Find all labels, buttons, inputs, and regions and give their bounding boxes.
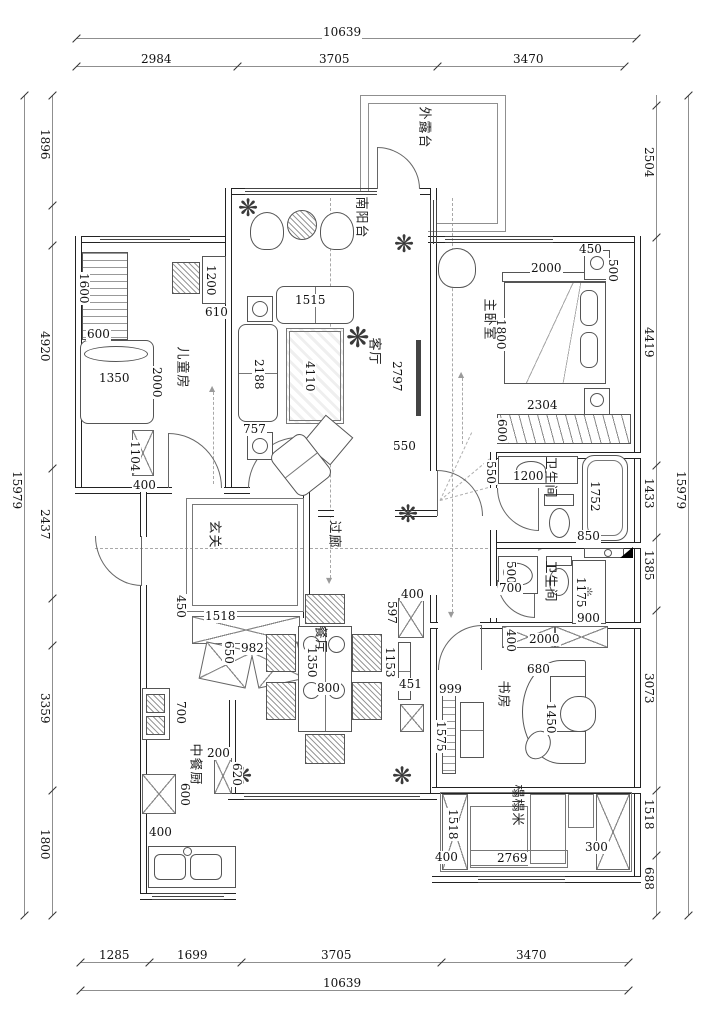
window xyxy=(478,876,565,883)
dim-label: 982 xyxy=(240,642,265,655)
axis-line xyxy=(462,378,463,444)
door-entry xyxy=(95,536,142,586)
balcony-table xyxy=(287,210,317,240)
dim-label: 700 xyxy=(498,582,523,595)
dim-label: 15979 xyxy=(674,470,687,510)
dim-label: 1600 xyxy=(77,272,90,305)
dim-label: 400 xyxy=(132,479,157,492)
pillow xyxy=(580,332,598,368)
dim-label: 680 xyxy=(526,663,551,676)
dining-chair xyxy=(305,594,345,624)
kitchen-sink xyxy=(154,854,186,880)
dim-label: 999 xyxy=(438,683,463,696)
bookshelf xyxy=(555,626,608,648)
dim-label: 550 xyxy=(484,460,497,485)
arrow-up-icon: ▲ xyxy=(458,371,464,379)
lamp xyxy=(252,438,268,454)
door-terrace xyxy=(377,147,420,189)
dim-label: 1153 xyxy=(383,646,396,679)
terrace-outline xyxy=(505,95,506,232)
toilet xyxy=(549,508,570,538)
room-label-dining: 餐厅 xyxy=(314,625,327,653)
window xyxy=(430,200,437,244)
dim-label: 1752 xyxy=(588,480,601,513)
balcony-chair xyxy=(320,212,354,250)
dim-label: 2000 xyxy=(530,262,563,275)
wall xyxy=(140,585,147,900)
dim-line xyxy=(656,95,657,915)
door-bathroom-1 xyxy=(497,488,539,531)
dining-chair xyxy=(266,682,296,720)
dining-chair xyxy=(305,734,345,764)
wall xyxy=(490,530,497,586)
arrow-down-icon: ▼ xyxy=(326,577,332,585)
dim-label: 1200 xyxy=(512,470,545,483)
dim-label: 2304 xyxy=(526,399,559,412)
wall xyxy=(634,236,641,883)
dim-label: 1385 xyxy=(642,549,655,582)
pillow xyxy=(84,346,148,362)
dim-label: 600 xyxy=(495,418,508,443)
washer xyxy=(604,549,612,557)
lamp xyxy=(590,256,604,270)
cabinet xyxy=(142,774,176,814)
wall xyxy=(420,793,437,800)
dim-label: 620 xyxy=(230,762,243,787)
dim-label: 1350 xyxy=(98,372,131,385)
burner xyxy=(146,716,165,735)
dim-label: 200 xyxy=(206,747,231,760)
pillow xyxy=(580,290,598,326)
dim-label: 2000 xyxy=(150,366,163,399)
dim-label: 4920 xyxy=(38,330,51,363)
room-label-kitchen: 中餐厨 xyxy=(189,743,202,785)
room-label-bathroom-1: 卫生间 xyxy=(544,456,557,498)
tatami-panel xyxy=(596,794,630,870)
dim-label: 688 xyxy=(642,866,655,891)
arrow-up-icon: ▲ xyxy=(209,385,215,393)
window xyxy=(245,188,377,195)
door-master-bedroom xyxy=(437,470,483,516)
terrace-outline xyxy=(497,103,498,223)
dim-label: 1518 xyxy=(642,798,655,831)
dim-label: 3470 xyxy=(515,949,548,962)
dim-label: 650 xyxy=(222,640,235,665)
room-label-south-balcony: 南阳台 xyxy=(355,196,368,238)
plant-icon: ❋ xyxy=(394,232,414,256)
dim-label: 1175 xyxy=(574,576,587,609)
wall xyxy=(75,487,172,494)
room-label-terrace: 外露台 xyxy=(418,106,431,148)
desk-chair xyxy=(172,262,200,294)
dim-label: 3705 xyxy=(318,53,351,66)
cabinet xyxy=(398,598,424,638)
dim-label: 3073 xyxy=(642,672,655,705)
tv xyxy=(416,340,421,416)
wardrobe xyxy=(497,414,631,444)
wall xyxy=(430,188,437,200)
arrow-down-icon: ▼ xyxy=(448,611,454,619)
dim-label: 2000 xyxy=(528,633,561,646)
dim-label: 800 xyxy=(316,682,341,695)
dining-chair xyxy=(266,634,296,672)
foyer-floor-inner xyxy=(192,504,298,606)
dim-label: 1515 xyxy=(294,294,327,307)
wall xyxy=(228,793,244,800)
room-label-master-bedroom: 主卧室 xyxy=(483,298,496,340)
plant-icon: ❋ xyxy=(238,196,258,220)
dim-label: 15979 xyxy=(10,470,23,510)
wall xyxy=(318,510,334,517)
room-label-bathroom-2: 卫生间 xyxy=(544,560,557,602)
dim-label: 450 xyxy=(174,594,187,619)
burner xyxy=(146,694,165,713)
cabinet xyxy=(460,702,484,758)
dim-line xyxy=(52,95,53,915)
dim-label: 400 xyxy=(434,851,459,864)
tatami-section xyxy=(568,794,594,828)
floor-plan: ▶ ▼ ▼ ▲ ▲ xyxy=(0,0,701,1018)
dim-line xyxy=(688,95,689,915)
dim-label: 500 xyxy=(606,258,619,283)
dining-chair xyxy=(352,634,382,672)
terrace-outline xyxy=(428,231,506,232)
dim-label: 3705 xyxy=(320,949,353,962)
dim-line xyxy=(24,95,25,915)
wall xyxy=(140,487,147,537)
corridor-axis-line xyxy=(95,548,538,549)
terrace-outline xyxy=(436,223,498,224)
dim-label: 2769 xyxy=(496,852,529,865)
room-label-study: 书房 xyxy=(497,680,510,708)
window xyxy=(100,236,190,243)
dim-label: 1800 xyxy=(38,828,51,861)
dim-label: 700 xyxy=(174,700,187,725)
dim-label: 900 xyxy=(576,612,601,625)
dim-label: 3470 xyxy=(512,53,545,66)
room-label-living-room: 客厅 xyxy=(368,337,381,365)
kitchen-sink xyxy=(190,854,222,880)
dim-label: 400 xyxy=(148,826,173,839)
wall xyxy=(224,487,250,494)
dim-label: 300 xyxy=(584,841,609,854)
dim-label: 2797 xyxy=(390,360,403,393)
terrace-outline xyxy=(368,103,369,191)
cabinet xyxy=(398,642,411,700)
room-label-corridor: 过廊 xyxy=(328,520,341,548)
plate xyxy=(328,636,345,653)
dim-label: 2437 xyxy=(38,508,51,541)
door-study xyxy=(438,625,482,670)
dim-label: 451 xyxy=(398,678,423,691)
armchair xyxy=(438,248,476,288)
dim-label: 757 xyxy=(242,423,267,436)
dim-label: 450 xyxy=(578,243,603,256)
dim-label: 2504 xyxy=(642,146,655,179)
dim-label: 1518 xyxy=(446,808,459,841)
cabinet xyxy=(400,704,424,732)
wall xyxy=(430,622,438,629)
room-label-foyer: 玄关 xyxy=(208,520,221,548)
dim-label: 400 xyxy=(400,588,425,601)
dim-label: 850 xyxy=(576,530,601,543)
dim-label: 1450 xyxy=(544,702,557,735)
dim-label: 3359 xyxy=(38,692,51,725)
dim-label: 600 xyxy=(178,782,191,807)
dim-label: 1518 xyxy=(204,610,237,623)
window xyxy=(152,893,224,900)
lamp xyxy=(252,301,268,317)
wall xyxy=(224,893,236,900)
dim-label: 1104 xyxy=(128,440,141,473)
window xyxy=(244,793,420,800)
wall xyxy=(140,893,152,900)
dim-label: 2984 xyxy=(140,53,173,66)
wall xyxy=(225,188,232,494)
dim-label: 1285 xyxy=(98,949,131,962)
desk-chair xyxy=(560,696,596,732)
wall xyxy=(432,876,478,883)
dim-label: 550 xyxy=(392,440,417,453)
dim-label: 597 xyxy=(385,600,398,625)
dim-label: 10639 xyxy=(322,26,362,39)
dim-label: 1575 xyxy=(434,720,447,753)
window xyxy=(445,236,553,243)
lamp xyxy=(590,393,604,407)
plant-icon: ❋ xyxy=(398,502,418,526)
room-label-tatami: 榻榻米 xyxy=(511,784,524,826)
terrace-outline xyxy=(368,103,498,104)
dining-chair xyxy=(352,682,382,720)
terrace-outline xyxy=(360,95,361,191)
dim-label: 610 xyxy=(204,306,229,319)
dim-label: 1699 xyxy=(176,949,209,962)
dim-label: 600 xyxy=(86,328,111,341)
dim-label: 1433 xyxy=(642,477,655,510)
room-label-kids-room: 儿童房 xyxy=(176,346,189,388)
faucet xyxy=(183,847,192,856)
dim-label: 4419 xyxy=(642,326,655,359)
wall xyxy=(430,244,437,471)
dim-label: 1896 xyxy=(38,128,51,161)
dim-label: 1200 xyxy=(204,264,217,297)
dim-label: 2188 xyxy=(252,358,265,391)
wall xyxy=(565,876,641,883)
dim-label: 4110 xyxy=(303,360,316,393)
plant-icon: ❋ xyxy=(392,764,412,788)
terrace-outline xyxy=(360,95,506,96)
dim-label: 10639 xyxy=(322,977,362,990)
dim-label: 400 xyxy=(504,628,517,653)
